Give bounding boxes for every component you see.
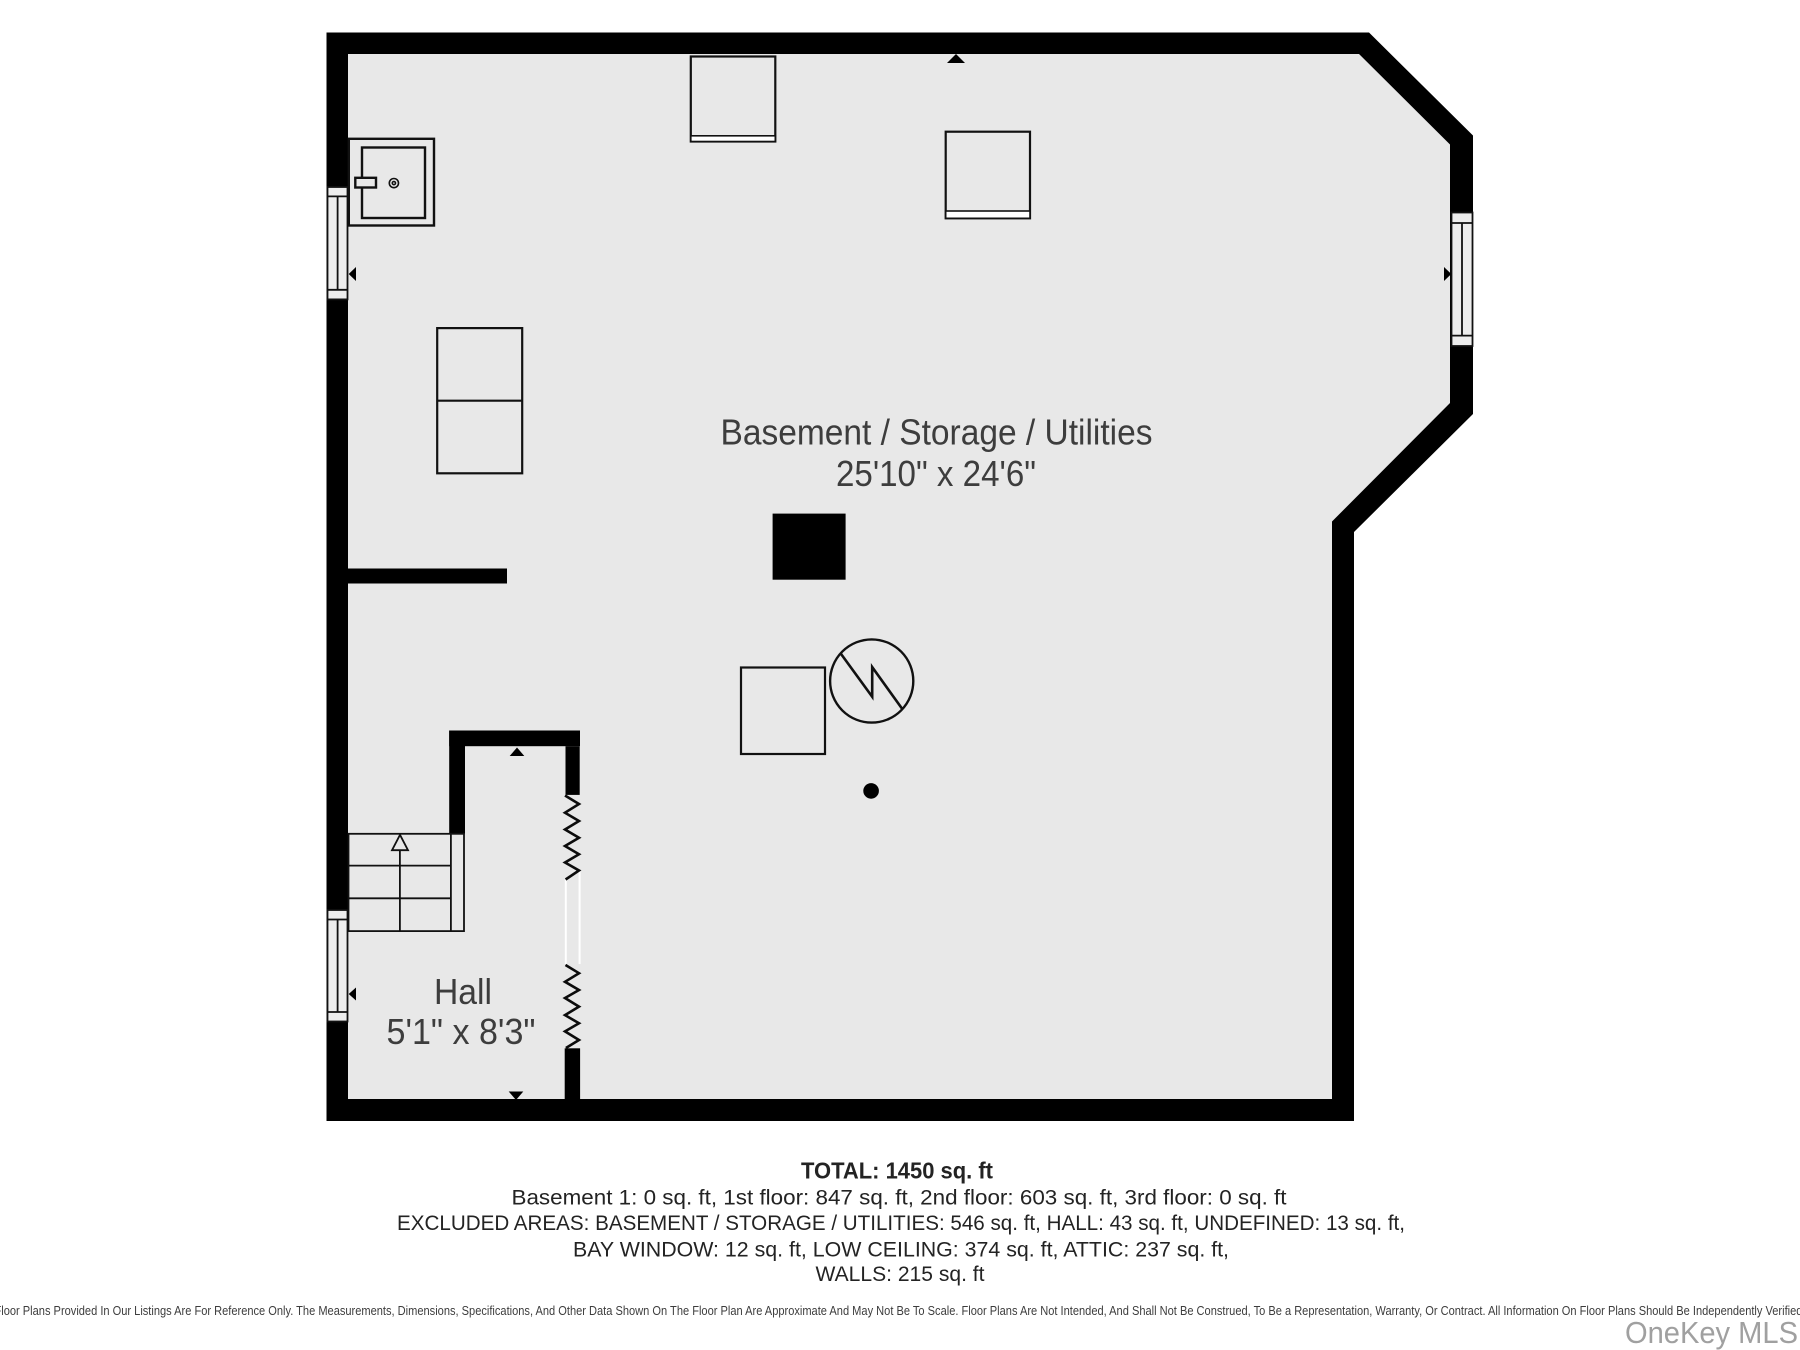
svg-text:5'1" x 8'3": 5'1" x 8'3" xyxy=(387,1011,536,1052)
svg-text:BAY WINDOW: 12 sq. ft, LOW CEI: BAY WINDOW: 12 sq. ft, LOW CEILING: 374 … xyxy=(573,1237,1229,1261)
svg-text:Floor Plans Provided In Our Li: Floor Plans Provided In Our Listings Are… xyxy=(0,1304,1800,1318)
svg-text:OneKey MLS: OneKey MLS xyxy=(1625,1315,1798,1350)
svg-text:Hall: Hall xyxy=(434,971,492,1012)
svg-text:Basement 1: 0 sq. ft, 1st floo: Basement 1: 0 sq. ft, 1st floor: 847 sq.… xyxy=(512,1186,1287,1210)
svg-text:25'10" x 24'6": 25'10" x 24'6" xyxy=(836,453,1036,494)
svg-text:TOTAL: 1450 sq. ft: TOTAL: 1450 sq. ft xyxy=(801,1158,993,1184)
svg-text:EXCLUDED AREAS: BASEMENT / STO: EXCLUDED AREAS: BASEMENT / STORAGE / UTI… xyxy=(397,1211,1405,1235)
svg-text:Basement / Storage / Utilities: Basement / Storage / Utilities xyxy=(721,411,1153,452)
svg-text:WALLS: 215 sq. ft: WALLS: 215 sq. ft xyxy=(816,1262,985,1286)
